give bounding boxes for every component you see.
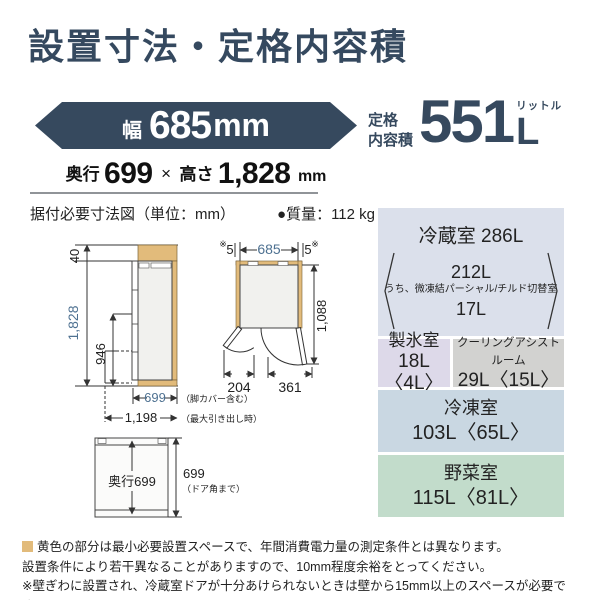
- fridge-sub-detail: うち、微凍結パーシャル/チルド切替室: [385, 283, 558, 297]
- height-label: 高さ: [179, 165, 213, 184]
- dim-door-projection: 1,088: [314, 300, 329, 333]
- rated-capacity-label: 定格 内容積: [368, 111, 413, 151]
- width-banner-arrow: 幅 685 mm: [35, 102, 357, 149]
- freezer-title: 冷凍室: [444, 396, 498, 420]
- yellow-area-legend-icon: [22, 541, 33, 552]
- top-view-dims-bottom: [224, 350, 312, 378]
- mark-right-asterisk: ※: [311, 239, 319, 249]
- width-unit: mm: [213, 107, 270, 144]
- vegetable-value: 115L〈81L〉: [413, 485, 529, 511]
- rated-capacity-value: 551: [419, 92, 513, 152]
- dim-max-depth-note: （最大引き出し時）: [181, 413, 262, 424]
- cell-fridge: 冷蔵室 286L 212L うち、微凍結パーシャル/チルド切替室 17L: [378, 208, 564, 336]
- depth-value: 699: [104, 157, 153, 190]
- cooling-title: クーリングアシストルーム: [453, 334, 564, 370]
- dim-right-door: 361: [278, 379, 302, 395]
- fridge-title: 冷蔵室 286L: [419, 221, 524, 248]
- top-view-doors: [223, 326, 307, 364]
- table-row-middle: 製氷室 18L〈4L〉 クーリングアシストルーム 29L〈15L〉: [378, 339, 564, 387]
- footnote-1: 黄色の部分は最小必要設置スペースで、年間消費電力量の測定条件とは異なります。: [22, 538, 588, 558]
- rated-capacity-unit-block: リットル L: [516, 98, 562, 151]
- dim-top-clearance: 40: [67, 249, 82, 263]
- section-row: 据付必要寸法図（単位：mm） ●質量：112 kg: [30, 203, 375, 224]
- cooling-value: 29L〈15L〉: [458, 370, 559, 392]
- fridge-sub-value: 17L: [456, 297, 486, 321]
- diagram-heading: 据付必要寸法図（単位：mm）: [30, 203, 235, 224]
- width-value: 685: [149, 104, 211, 148]
- capacity-table: 冷蔵室 286L 212L うち、微凍結パーシャル/チルド切替室 17L 製氷室…: [378, 208, 564, 517]
- depth-label: 奥行: [66, 165, 100, 184]
- width-label: 幅: [122, 114, 142, 143]
- cell-freezer: 冷凍室 103L〈65L〉: [378, 390, 564, 452]
- dim-height: 1,828: [65, 305, 81, 340]
- cell-ice: 製氷室 18L〈4L〉: [378, 339, 450, 387]
- side-view-fridge: [132, 245, 177, 386]
- ice-title: 製氷室: [389, 331, 440, 351]
- cell-cooling: クーリングアシストルーム 29L〈15L〉: [453, 339, 564, 387]
- installation-diagram: 40 1,828 946 699 （脚カバー含む） 1,198 （最大引き出し時…: [20, 228, 375, 535]
- fridge-sub-block: 212L うち、微凍結パーシャル/チルド切替室 17L: [383, 250, 559, 332]
- vegetable-title: 野菜室: [444, 461, 498, 485]
- depth-view-outer-value: 699: [183, 466, 205, 481]
- dim-drawer-height: 946: [93, 343, 108, 365]
- height-value: 1,828: [218, 157, 291, 190]
- times-sign: ×: [161, 164, 171, 183]
- fridge-sub-main: 212L: [451, 261, 491, 283]
- top-view-fridge: [236, 261, 302, 328]
- dim-depth: 699: [144, 390, 166, 405]
- footnotes: 黄色の部分は最小必要設置スペースで、年間消費電力量の測定条件とは異なります。 設…: [22, 538, 588, 600]
- dim-left-door: 204: [227, 379, 251, 395]
- spec-sheet: 設置寸法・定格内容積 幅 685 mm 奥行 699 × 高さ 1,828 mm…: [0, 0, 600, 600]
- depth-view-inner-label: 奥行699: [108, 474, 156, 489]
- divider-line: [30, 192, 318, 194]
- depth-view-outer-note: （ドア角まで）: [182, 483, 245, 494]
- ice-value: 18L〈4L〉: [378, 351, 450, 395]
- dim-max-depth: 1,198: [125, 410, 158, 425]
- page-title: 設置寸法・定格内容積: [28, 18, 408, 70]
- footnote-3: ※壁ぎわに設置され、冷蔵室ドアが十分あけられないときは壁から15mm以上のスペー…: [22, 577, 588, 600]
- depth-height-line: 奥行 699 × 高さ 1,828 mm: [35, 157, 357, 191]
- dim-left-gap: 5: [226, 242, 233, 257]
- depth-height-unit: mm: [298, 168, 326, 185]
- capacity-unit: L: [516, 113, 562, 151]
- freezer-value: 103L〈65L〉: [412, 420, 530, 446]
- rated-capacity: 定格 内容積 551 リットル L: [368, 92, 562, 152]
- dim-width: 685: [257, 241, 281, 257]
- cell-vegetable: 野菜室 115L〈81L〉: [378, 455, 564, 517]
- footnote-2: 設置条件により若干異なることがありますので、10mm程度余裕をとってください。: [22, 558, 588, 578]
- angle-bracket-right-icon: [546, 250, 559, 332]
- mass-value: ●質量：112 kg: [277, 203, 375, 224]
